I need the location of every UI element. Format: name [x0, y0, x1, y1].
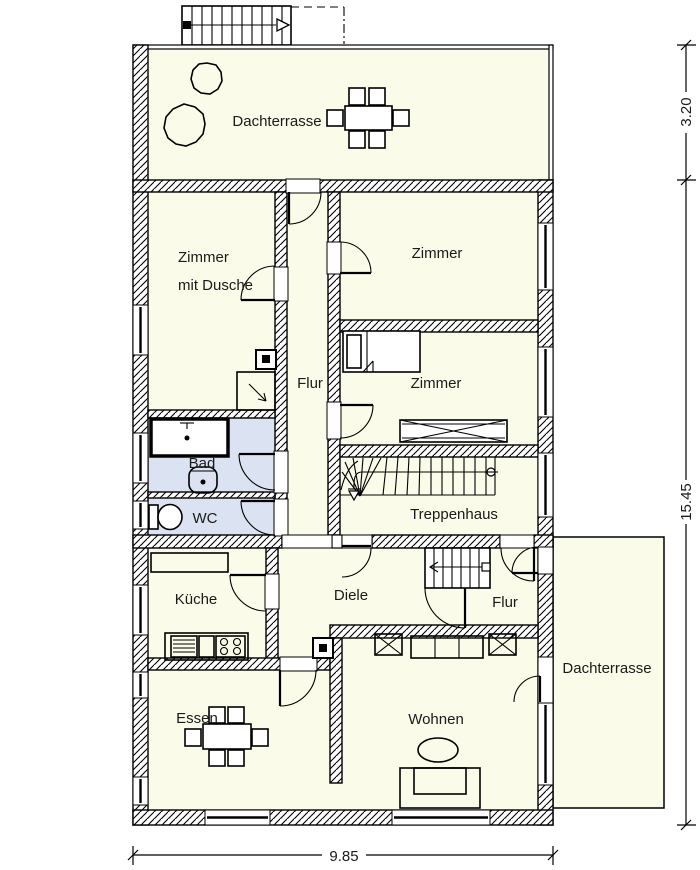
label-flur-lower: Flur [492, 594, 518, 611]
wall-mid-center [372, 535, 500, 548]
terrace-parapet-top [133, 45, 553, 49]
floor-plan-canvas: Dachterrasse Zimmer mit Dusche Zimmer Zi… [0, 0, 700, 870]
terrace-parapet-right [549, 45, 553, 180]
label-wohnen: Wohnen [408, 711, 464, 728]
wall-exterior-top [133, 180, 553, 192]
chimney-icon [313, 638, 333, 658]
label-bad: Bad [189, 455, 216, 472]
stair-start-marker [183, 21, 191, 29]
dim-building-length: 15.45 [678, 483, 695, 521]
label-flur-upper: Flur [297, 375, 323, 392]
bed [343, 331, 420, 372]
table [203, 724, 251, 749]
label-zimmer-mit-dusche-1: Zimmer [178, 249, 229, 266]
wardrobe [400, 420, 507, 442]
wall-mid-left [133, 535, 282, 548]
dim-terrace-depth: 3.20 [678, 97, 695, 126]
wall-dusche-bad [148, 410, 275, 418]
label-diele: Diele [334, 587, 368, 604]
label-kueche: Küche [175, 591, 218, 608]
floor-plan: Dachterrasse Zimmer mit Dusche Zimmer Zi… [0, 0, 700, 870]
stair-end-marker [482, 563, 490, 571]
label-zimmer-mit-dusche-2: mit Dusche [178, 277, 253, 294]
wall-mid-right [534, 535, 553, 548]
label-zimmer-top: Zimmer [412, 245, 463, 262]
wall-jamb-post [332, 535, 342, 548]
label-dachterrasse-right: Dachterrasse [562, 660, 651, 677]
label-wc: WC [193, 510, 218, 527]
label-zimmer-mid: Zimmer [411, 375, 462, 392]
wall-essen-wohnen [330, 638, 342, 783]
label-dachterrasse-top: Dachterrasse [232, 113, 321, 130]
bathtub [151, 419, 228, 456]
label-essen: Essen [176, 710, 218, 727]
table [345, 106, 392, 130]
toilet [149, 505, 182, 530]
dim-building-width: 9.85 [329, 848, 358, 865]
label-treppenhaus: Treppenhaus [410, 506, 498, 523]
wall-zimmer-treppenhaus [340, 445, 538, 457]
